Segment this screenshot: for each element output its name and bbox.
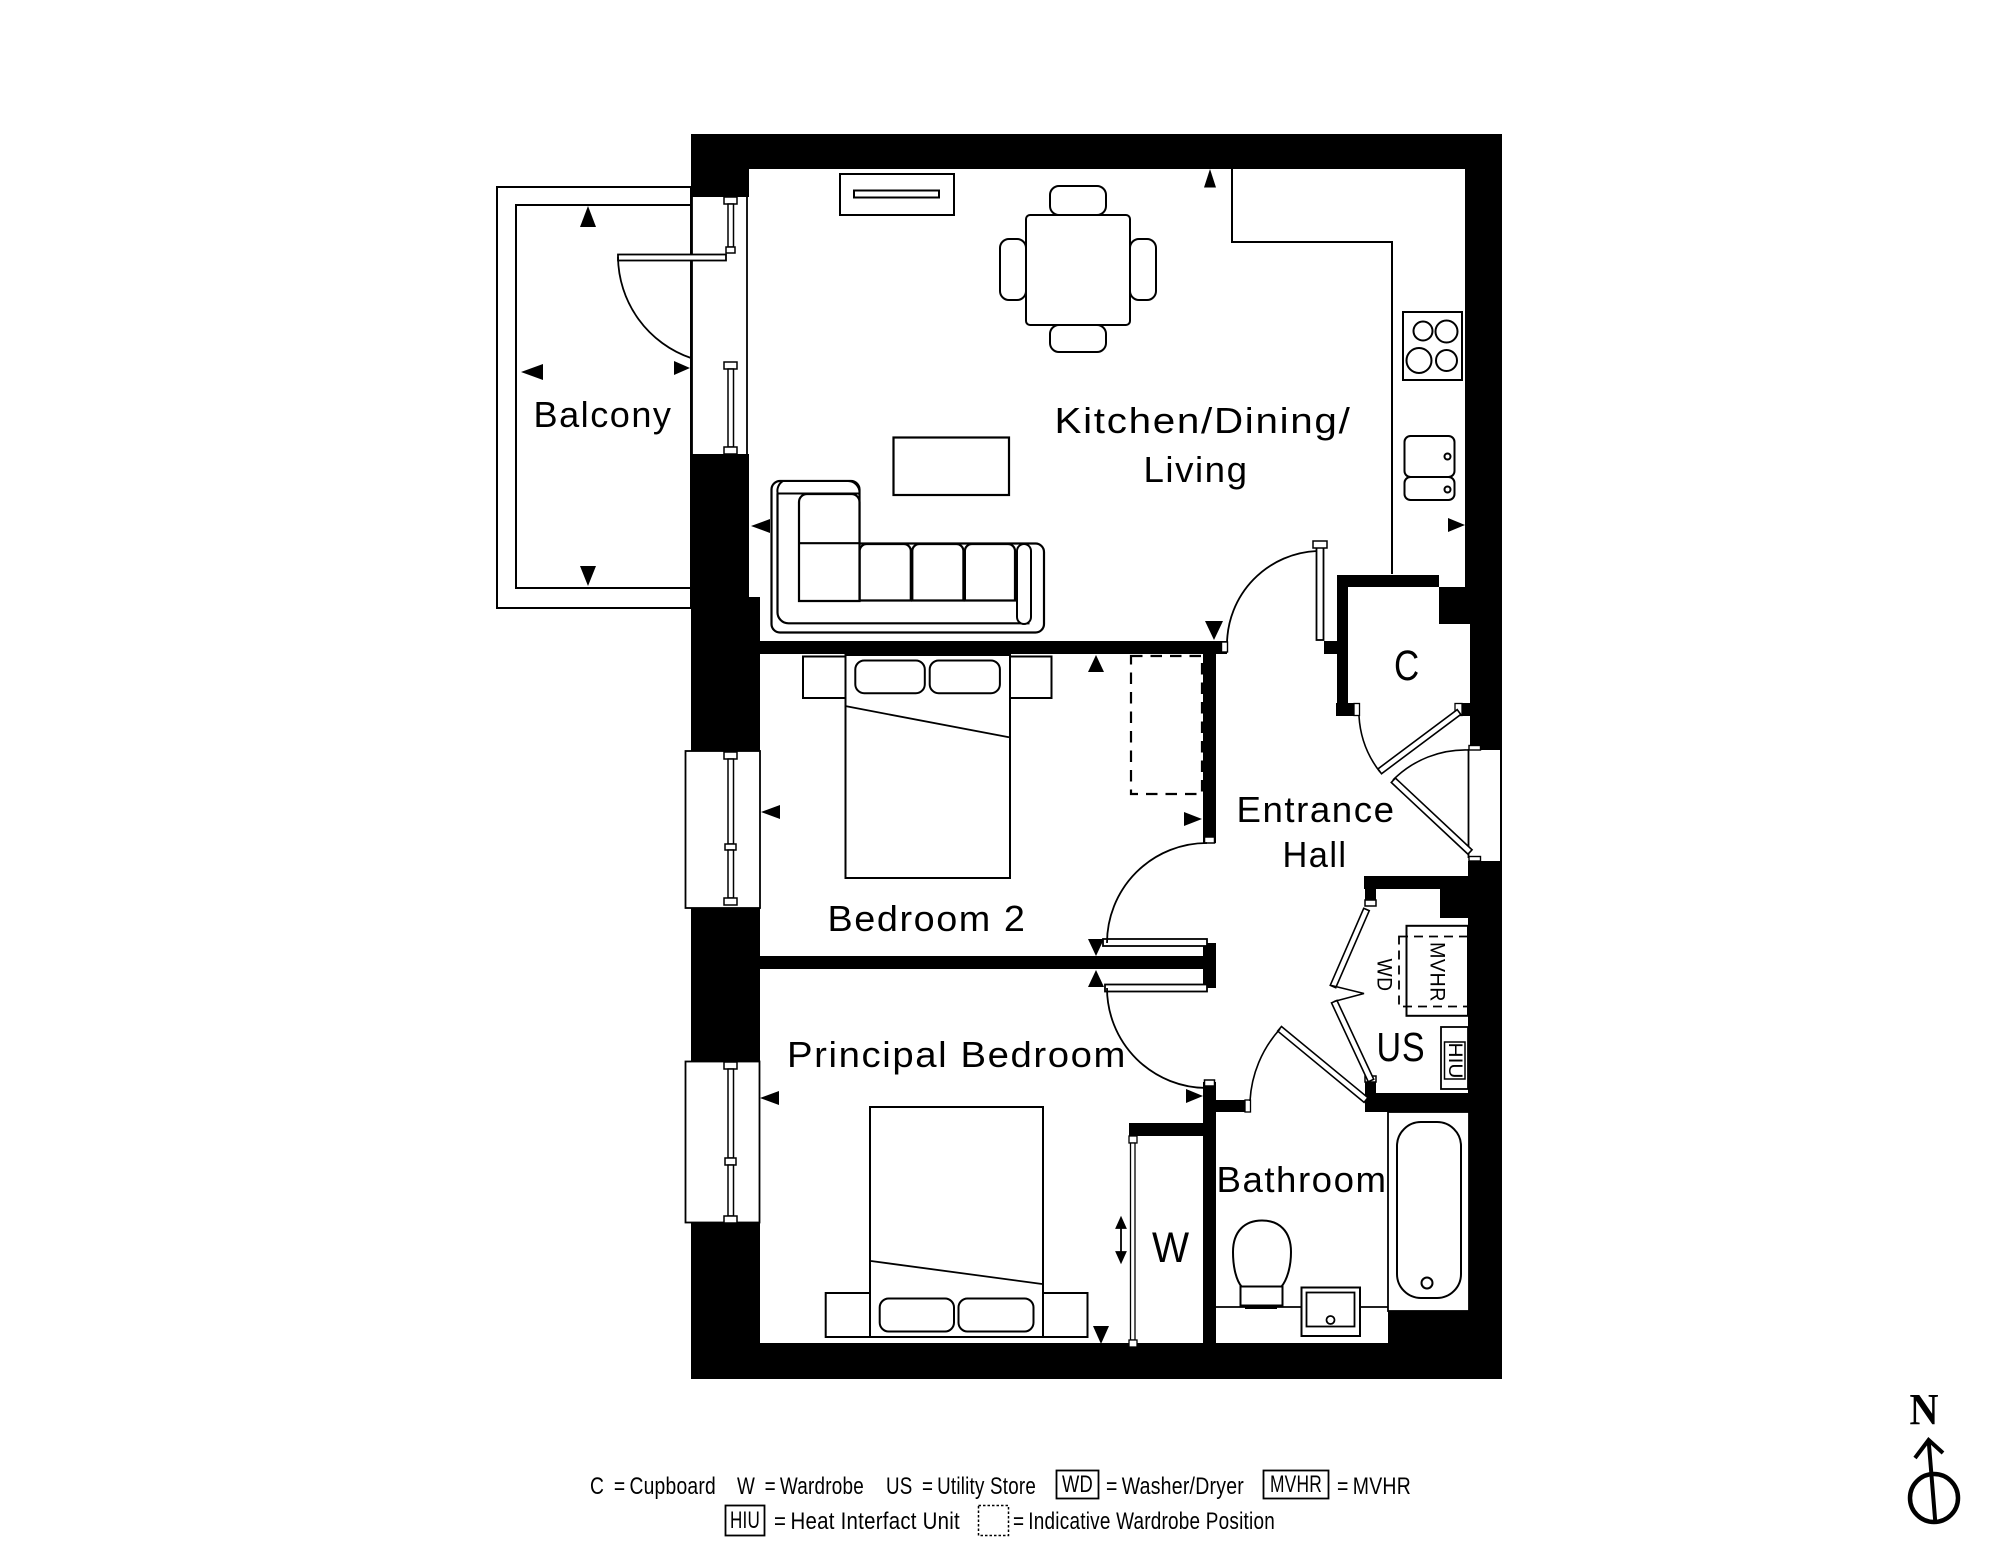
svg-text:Balcony: Balcony [534, 394, 673, 435]
svg-text:C = Cupboard: C = Cupboard [590, 1473, 716, 1500]
svg-text:C: C [1394, 642, 1420, 690]
svg-text:W = Wardrobe: W = Wardrobe [737, 1473, 864, 1500]
svg-text:US: US [1377, 1024, 1426, 1070]
svg-text:N: N [1910, 1385, 1939, 1434]
svg-text:WD: WD [1373, 959, 1396, 992]
svg-text:W: W [1152, 1224, 1190, 1272]
svg-text:MVHR: MVHR [1270, 1471, 1322, 1498]
svg-text:Hall: Hall [1283, 834, 1348, 875]
svg-text:HIU: HIU [730, 1507, 760, 1534]
svg-text:= Washer/Dryer: = Washer/Dryer [1106, 1473, 1244, 1500]
svg-text:Bedroom 2: Bedroom 2 [828, 898, 1027, 939]
svg-text:Bathroom: Bathroom [1217, 1159, 1388, 1200]
svg-text:= MVHR: = MVHR [1337, 1473, 1411, 1500]
svg-text:Entrance: Entrance [1237, 789, 1396, 830]
svg-text:MVHR: MVHR [1426, 942, 1449, 1002]
svg-text:HIU: HIU [1444, 1043, 1465, 1079]
svg-text:Principal Bedroom: Principal Bedroom [787, 1034, 1127, 1075]
svg-text:US = Utility Store: US = Utility Store [886, 1473, 1036, 1500]
svg-text:Kitchen/Dining/: Kitchen/Dining/ [1055, 400, 1352, 441]
svg-text:Living: Living [1144, 449, 1249, 490]
svg-text:= Heat Interfact Unit: = Heat Interfact Unit [774, 1508, 960, 1535]
svg-text:WD: WD [1062, 1471, 1093, 1498]
svg-text:= Indicative Wardrobe Position: = Indicative Wardrobe Position [1013, 1508, 1275, 1535]
